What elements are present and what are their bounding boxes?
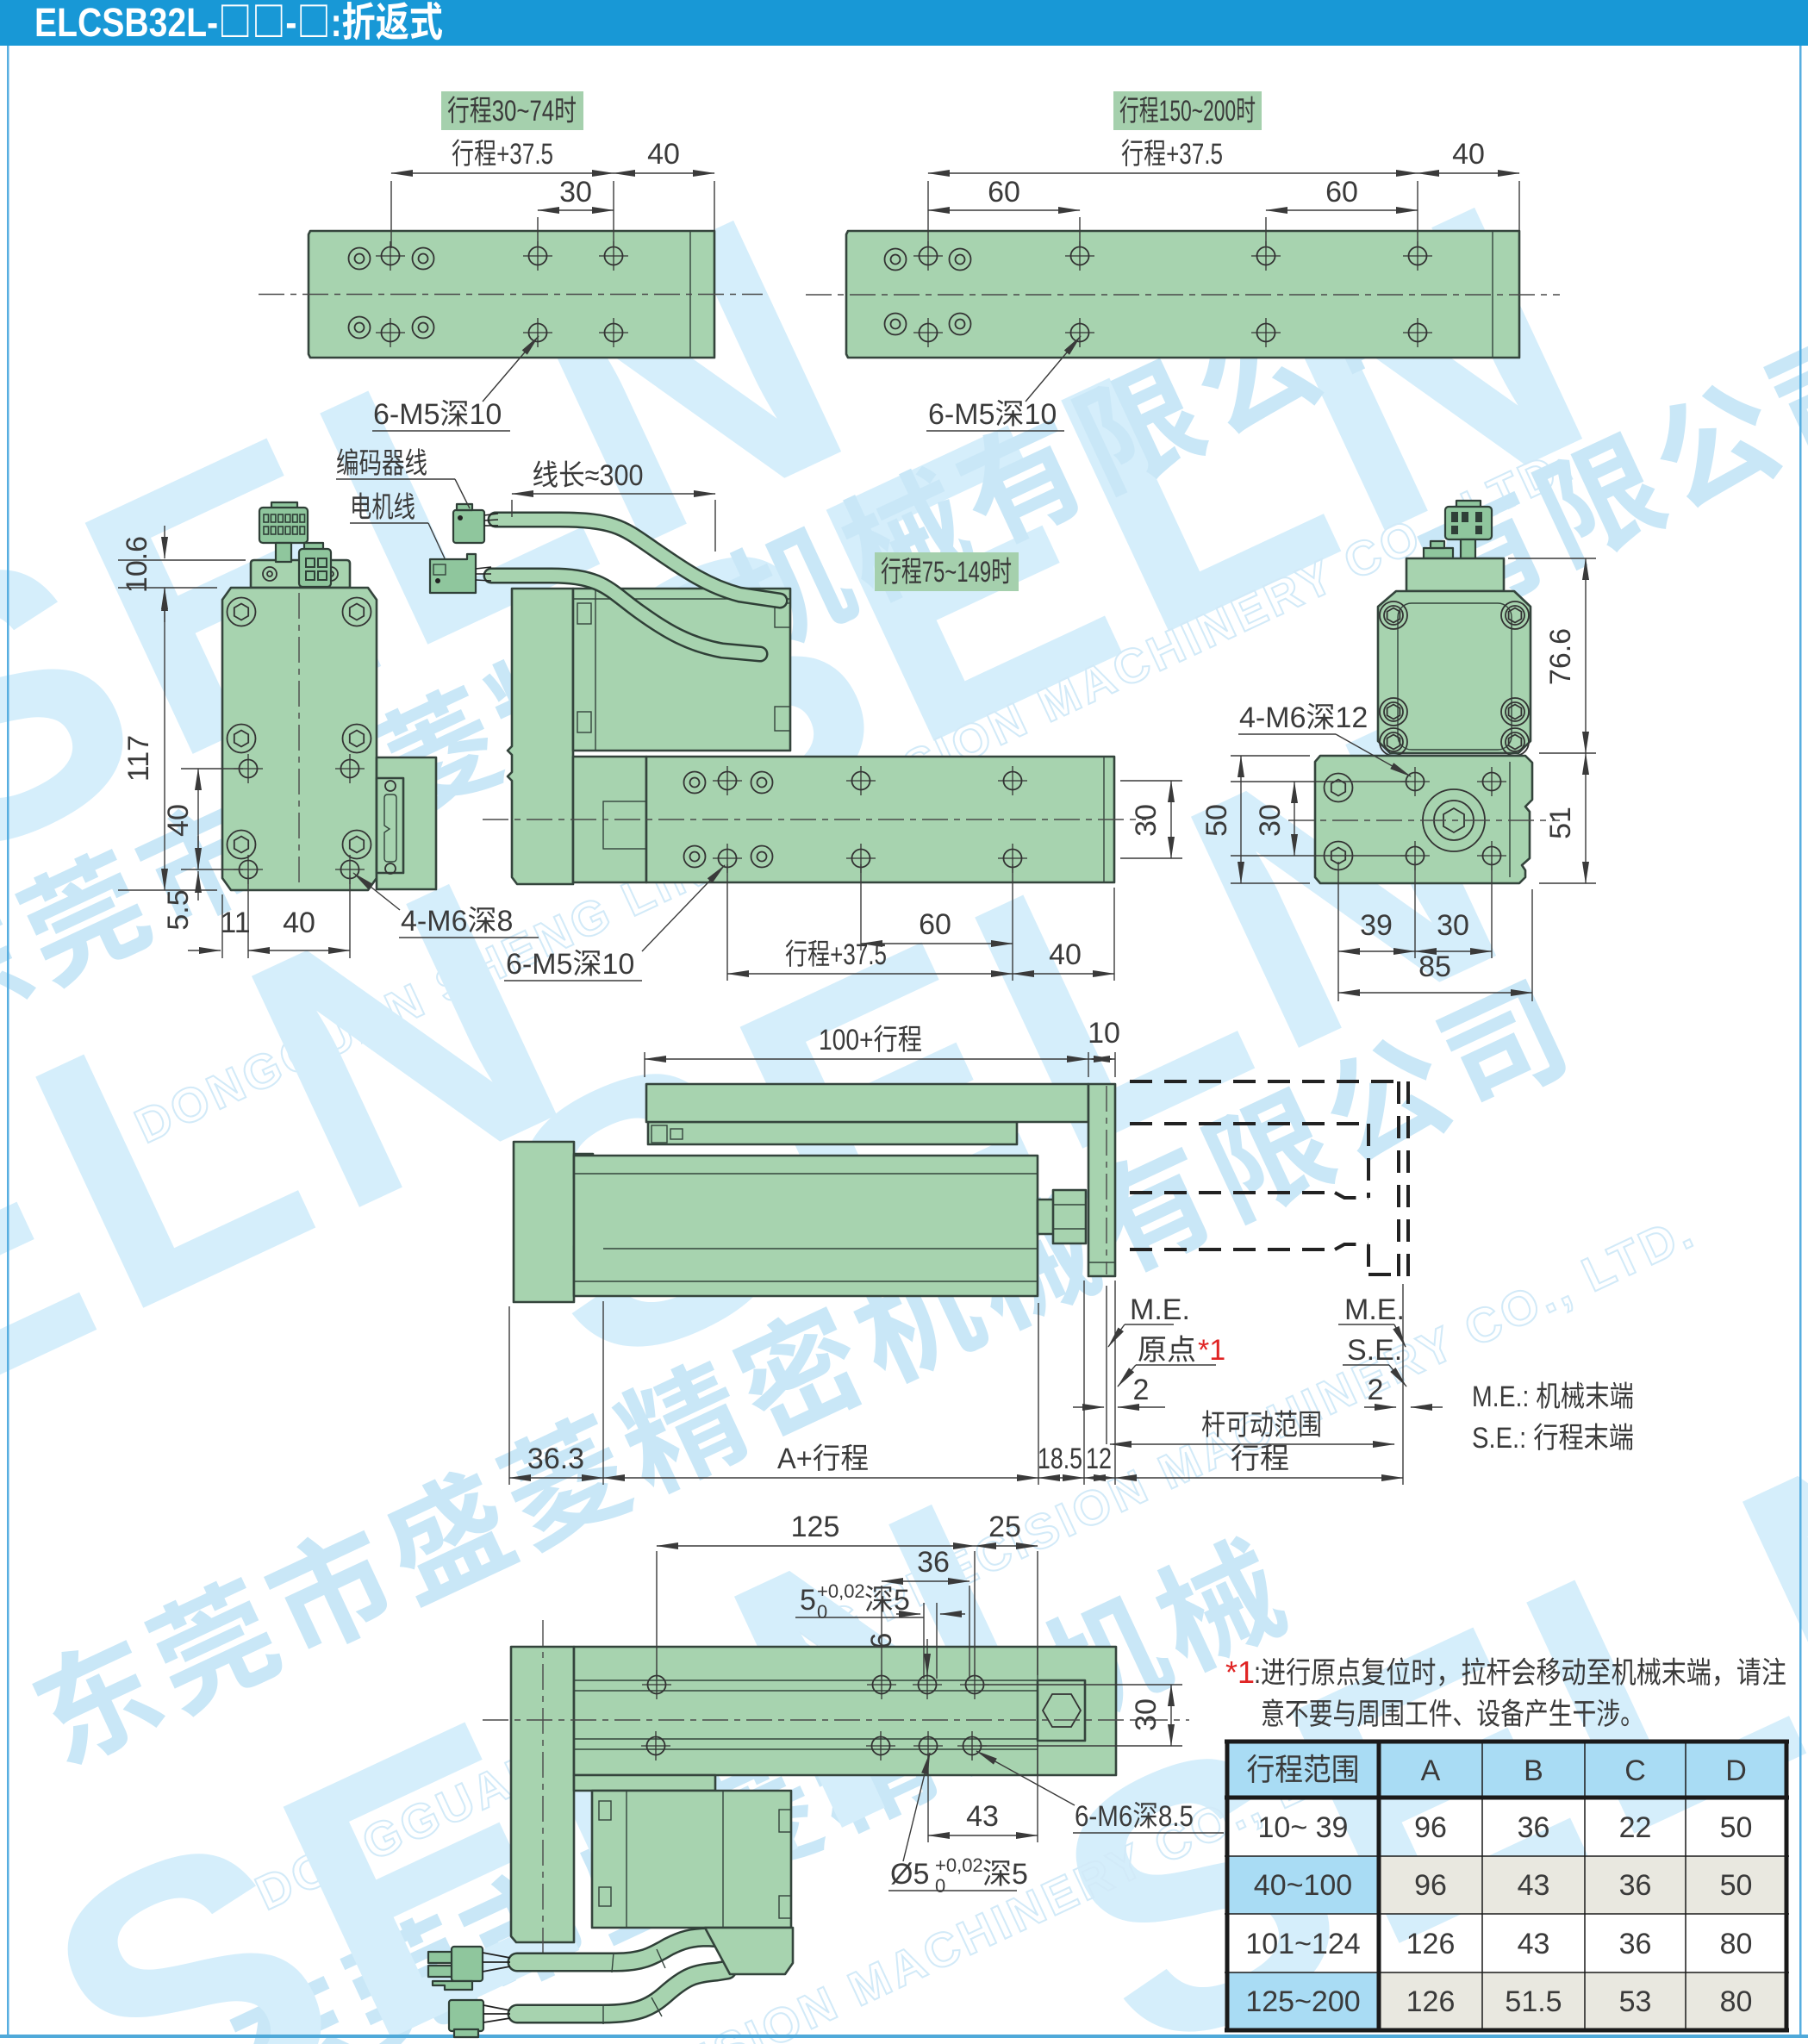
svg-text:117: 117 <box>122 735 155 782</box>
svg-text:36: 36 <box>917 1546 950 1579</box>
svg-text:40: 40 <box>1452 138 1485 171</box>
svg-text:30: 30 <box>1254 804 1287 837</box>
svg-text:101~124: 101~124 <box>1245 1928 1360 1960</box>
svg-text:40: 40 <box>1049 938 1082 971</box>
svg-text:+0,02: +0,02 <box>817 1580 865 1602</box>
svg-text:0: 0 <box>935 1875 945 1897</box>
svg-text:50: 50 <box>1720 1811 1753 1844</box>
svg-text:60: 60 <box>919 908 951 941</box>
svg-text:11: 11 <box>220 907 250 939</box>
svg-text:76.6: 76.6 <box>1544 628 1577 685</box>
svg-text:10.6: 10.6 <box>121 536 153 593</box>
svg-text:30: 30 <box>1130 804 1163 837</box>
svg-text:+0,02: +0,02 <box>935 1854 983 1876</box>
svg-text:40: 40 <box>162 804 195 837</box>
svg-text:36: 36 <box>1518 1811 1550 1844</box>
svg-text:18.5: 18.5 <box>1038 1443 1082 1475</box>
svg-text:30: 30 <box>1437 909 1469 942</box>
svg-text:M.E.: M.E. <box>1344 1293 1405 1326</box>
svg-text:125~200: 125~200 <box>1245 1985 1360 2018</box>
svg-text:53: 53 <box>1619 1985 1652 2018</box>
svg-text:12: 12 <box>1086 1443 1112 1475</box>
svg-text:36: 36 <box>1619 1869 1652 1902</box>
svg-text:43: 43 <box>966 1800 999 1833</box>
svg-text:D: D <box>1725 1754 1747 1787</box>
svg-text:0: 0 <box>817 1601 827 1623</box>
svg-text:96: 96 <box>1414 1869 1447 1902</box>
svg-text:A: A <box>1421 1754 1441 1787</box>
svg-text:80: 80 <box>1720 1928 1753 1960</box>
svg-text:96: 96 <box>1414 1811 1447 1844</box>
svg-text:30: 30 <box>559 176 592 209</box>
svg-text:6: 6 <box>865 1633 898 1649</box>
svg-text:50: 50 <box>1200 804 1233 837</box>
svg-text:Ø5: Ø5 <box>890 1858 929 1891</box>
svg-text:40~100: 40~100 <box>1254 1869 1352 1902</box>
svg-text:2: 2 <box>1133 1374 1150 1406</box>
svg-text:*1: *1 <box>1198 1334 1225 1367</box>
svg-text:25: 25 <box>988 1511 1021 1543</box>
svg-text:10: 10 <box>1088 1017 1120 1050</box>
svg-text:39: 39 <box>1360 909 1393 942</box>
svg-text:36.3: 36.3 <box>527 1443 584 1475</box>
svg-text:S.E.: S.E. <box>1347 1334 1402 1367</box>
svg-text:5.5: 5.5 <box>162 889 195 930</box>
svg-text:126: 126 <box>1406 1928 1456 1960</box>
svg-text:5: 5 <box>800 1584 816 1617</box>
svg-text:126: 126 <box>1406 1985 1456 2018</box>
svg-text:2: 2 <box>1368 1374 1384 1406</box>
svg-text:M.E.: M.E. <box>1130 1293 1190 1326</box>
svg-text:36: 36 <box>1619 1928 1652 1960</box>
svg-text:40: 40 <box>283 907 315 939</box>
svg-text:43: 43 <box>1518 1928 1550 1960</box>
svg-text:125: 125 <box>791 1511 840 1543</box>
svg-text:85: 85 <box>1418 950 1451 983</box>
svg-text:51.5: 51.5 <box>1505 1985 1562 2018</box>
svg-text:B: B <box>1524 1754 1543 1787</box>
svg-text:40: 40 <box>647 138 680 171</box>
svg-text:60: 60 <box>988 176 1020 209</box>
svg-text:22: 22 <box>1619 1811 1652 1844</box>
svg-text:C: C <box>1624 1754 1646 1787</box>
svg-text:51: 51 <box>1544 807 1577 839</box>
svg-text:*1: *1 <box>1225 1655 1255 1690</box>
svg-text:50: 50 <box>1720 1869 1753 1902</box>
svg-text:60: 60 <box>1325 176 1358 209</box>
svg-text:30: 30 <box>1130 1698 1163 1731</box>
svg-text:80: 80 <box>1720 1985 1753 2018</box>
svg-text:43: 43 <box>1518 1869 1550 1902</box>
svg-text:10~ 39: 10~ 39 <box>1258 1811 1349 1844</box>
